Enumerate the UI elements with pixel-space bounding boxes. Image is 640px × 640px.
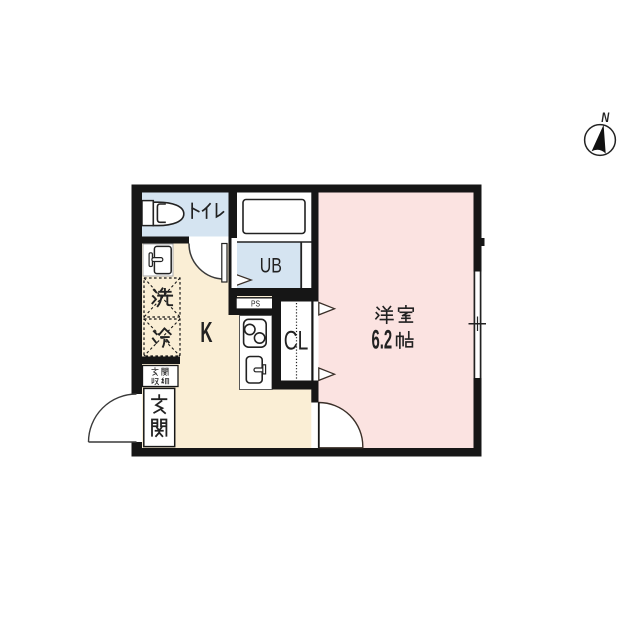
svg-text:K: K [200,318,212,350]
svg-text:N: N [601,110,610,125]
svg-text:UB: UB [260,253,282,277]
svg-text:PS: PS [251,299,260,309]
svg-text:6.2: 6.2 [372,324,393,355]
svg-text:CL: CL [284,325,308,355]
